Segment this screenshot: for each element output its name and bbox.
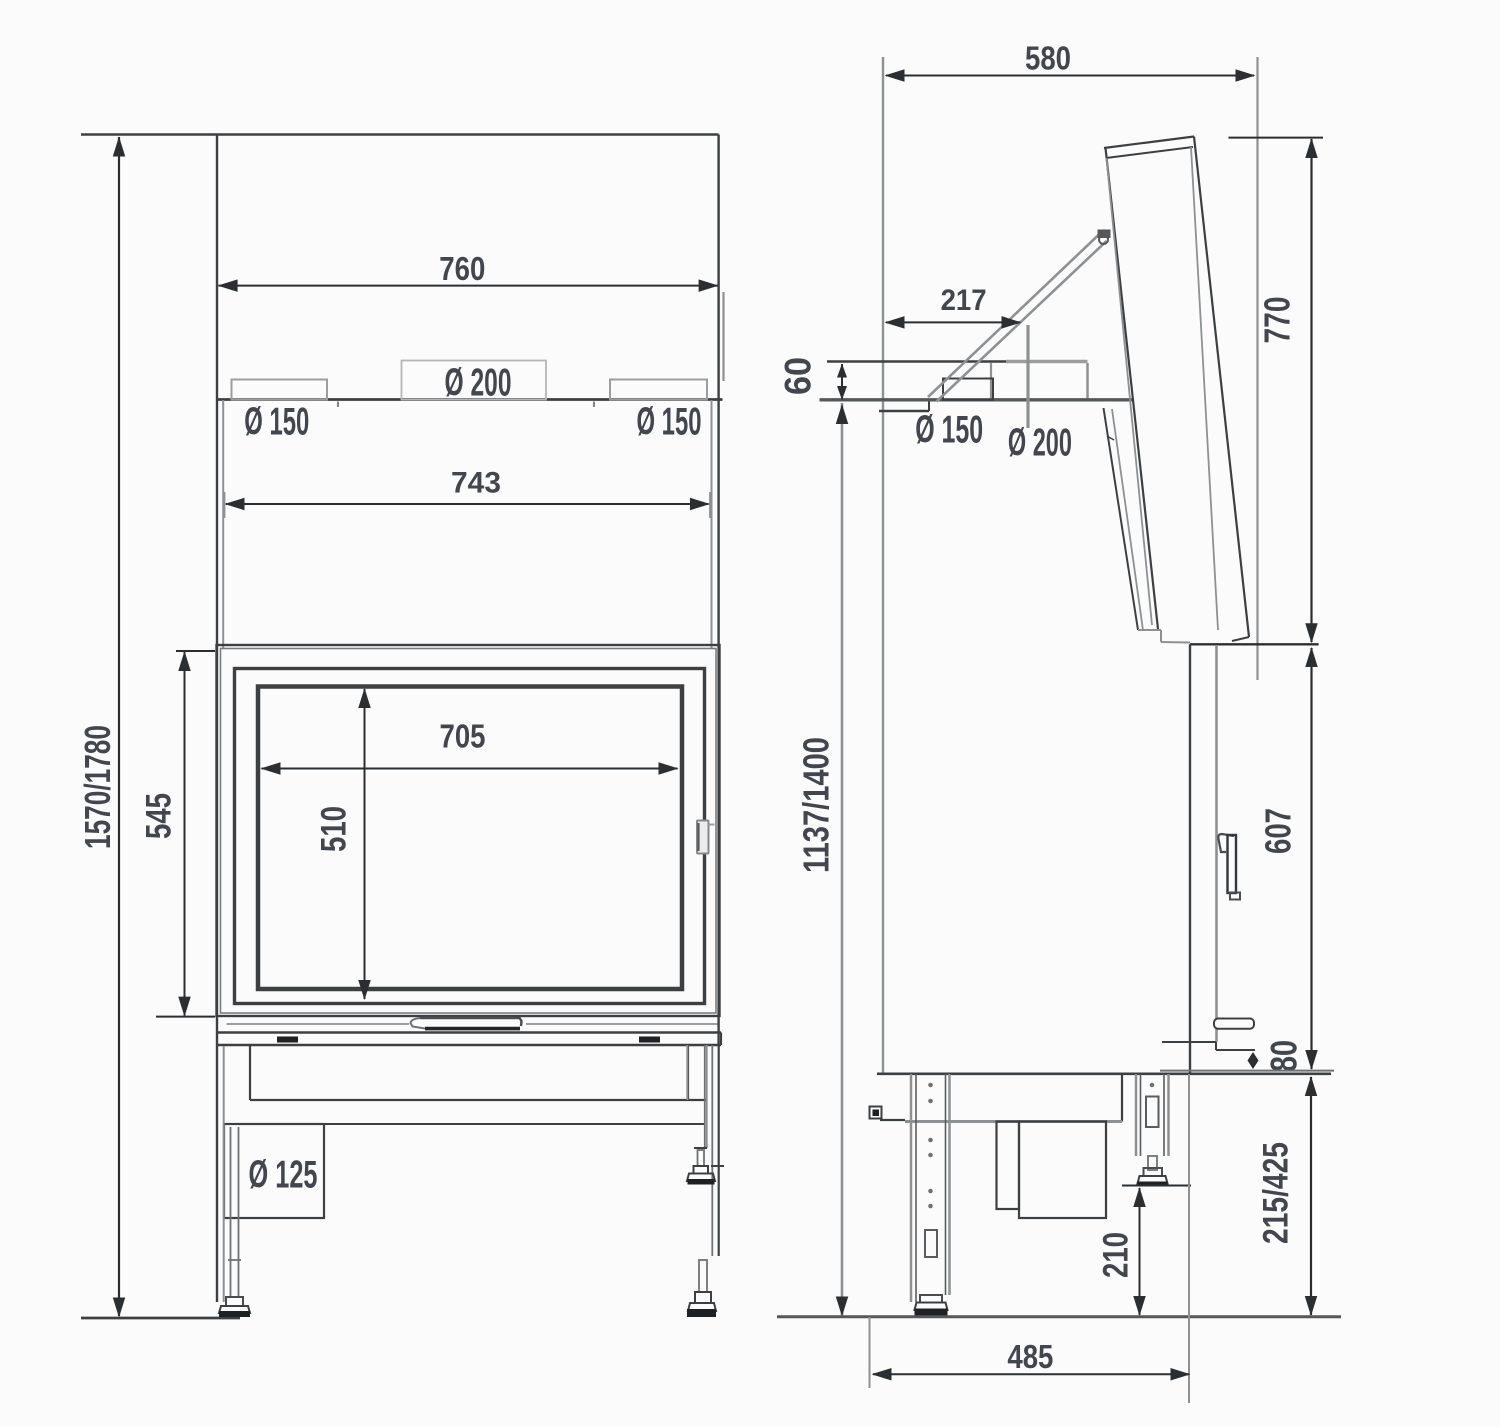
svg-text:215/425: 215/425 <box>1257 1142 1296 1244</box>
svg-text:770: 770 <box>1257 297 1298 344</box>
svg-text:Ø 150: Ø 150 <box>915 409 983 452</box>
svg-text:Ø 125: Ø 125 <box>249 1154 318 1197</box>
svg-text:607: 607 <box>1258 808 1299 854</box>
svg-text:Ø 150: Ø 150 <box>244 401 309 444</box>
svg-text:Ø 150: Ø 150 <box>637 401 702 444</box>
svg-text:210: 210 <box>1097 1232 1136 1278</box>
svg-text:510: 510 <box>315 806 354 852</box>
svg-text:485: 485 <box>1007 1338 1053 1375</box>
svg-text:Ø 200: Ø 200 <box>1008 422 1072 465</box>
svg-text:80: 80 <box>1264 1040 1305 1072</box>
svg-text:217: 217 <box>941 284 987 317</box>
svg-text:545: 545 <box>140 793 179 839</box>
svg-text:580: 580 <box>1025 40 1071 77</box>
svg-text:1570/1780: 1570/1780 <box>77 725 118 849</box>
svg-text:705: 705 <box>440 718 486 755</box>
svg-text:60: 60 <box>778 357 819 395</box>
svg-text:Ø 200: Ø 200 <box>445 362 512 405</box>
svg-text:743: 743 <box>451 467 501 500</box>
svg-text:1137/1400: 1137/1400 <box>796 737 837 873</box>
svg-text:760: 760 <box>439 250 485 287</box>
